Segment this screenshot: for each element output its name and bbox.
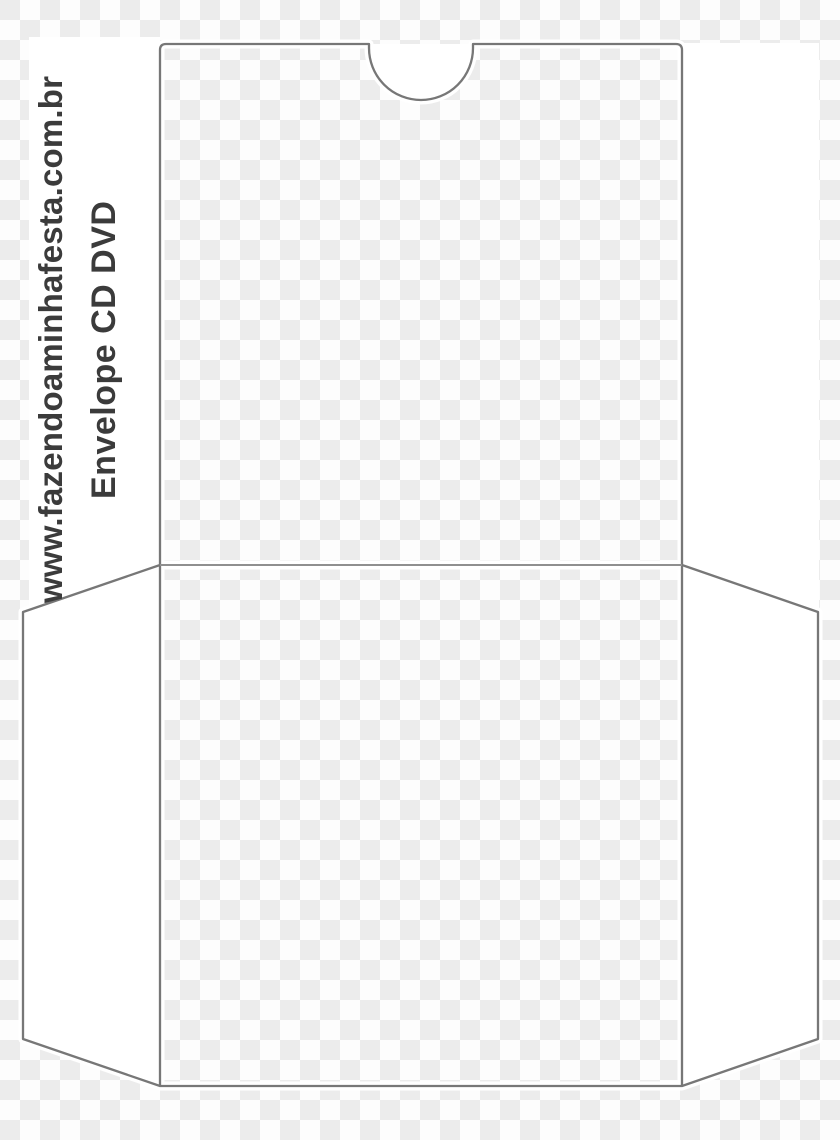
right-white-margin — [682, 43, 819, 612]
watermark-site-url: www.fazendoaminhafesta.com.br — [33, 76, 69, 603]
right-glue-flap — [682, 565, 818, 1086]
envelope-template-drawing — [0, 0, 840, 1140]
pocket-side-fold-lines — [160, 565, 682, 1086]
left-glue-flap — [23, 565, 160, 1086]
template-title: Envelope CD DVD — [86, 201, 123, 499]
thumb-notch-fill — [369, 44, 473, 100]
